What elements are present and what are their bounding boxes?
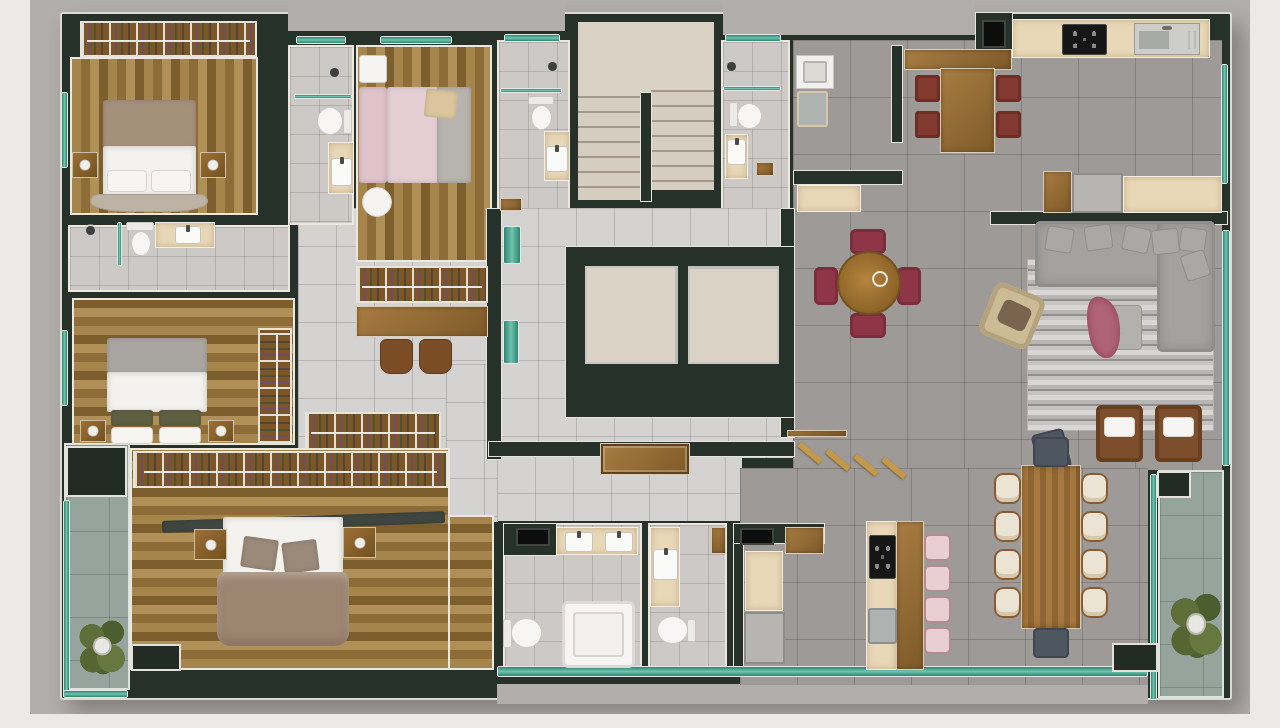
bed2-duvet <box>107 338 207 374</box>
bed2-pillow-green-a <box>111 410 153 426</box>
armchair-pillow-a <box>1104 417 1135 437</box>
dining-chair-cream-r3 <box>1081 549 1108 580</box>
ac-unit-balcony-left <box>66 446 127 497</box>
stove-island <box>869 535 896 579</box>
bed2-pillow-white-b <box>159 427 201 444</box>
bed2-sheet <box>107 372 207 412</box>
floor-plan-canvas <box>0 0 1280 728</box>
bed3-pillows <box>359 87 387 183</box>
breakfast-counter <box>904 49 1012 70</box>
toilet-bath2-bowl <box>317 107 343 135</box>
closet-corridor <box>305 412 441 450</box>
door-apartment-1 <box>503 226 521 264</box>
toilet-bath3-bowl <box>531 105 552 130</box>
window-bath4 <box>725 34 781 42</box>
panel-master-bedroom <box>131 644 181 671</box>
elevator-shaft-2 <box>688 266 779 364</box>
toilet-ensuite-bowl <box>131 231 151 256</box>
sofa-pillow-c <box>1121 224 1153 254</box>
island-stool-pink-2 <box>924 565 951 592</box>
panel-terrace <box>1112 643 1158 672</box>
nightstand-1a <box>72 152 98 178</box>
threshold-entry <box>787 430 847 437</box>
floor-bath2 <box>288 45 354 225</box>
appliance-utility <box>744 612 785 664</box>
closet-master <box>133 451 448 488</box>
exterior-notch-top-mid <box>288 0 565 31</box>
nightstand-3 <box>359 55 387 83</box>
island-wood-side <box>896 521 924 670</box>
dining-chair-cream-l2 <box>994 511 1021 542</box>
bed2-pillow-white-a <box>111 427 153 444</box>
console-hallway <box>797 185 861 212</box>
panel-utility <box>740 528 774 545</box>
laundry-sink <box>797 91 828 127</box>
shelf-bath5 <box>711 527 726 554</box>
table-round <box>837 251 901 315</box>
shower-shelf-bath4 <box>723 86 781 91</box>
bench-bath3 <box>500 198 522 211</box>
stair-landing <box>578 22 714 98</box>
island-stool-pink-4 <box>924 627 951 654</box>
island-stool-pink-3 <box>924 596 951 623</box>
bed1-pillow-b <box>151 170 191 192</box>
bed2-pillow-green-b <box>159 410 201 426</box>
window-kitchen-east <box>1221 64 1228 184</box>
closet-bedroom-top2 <box>356 266 488 303</box>
toilet-master-bowl <box>511 618 542 648</box>
stair-divider-wall <box>640 92 652 202</box>
stair-flight-right <box>651 90 714 190</box>
desk-chair-a <box>380 339 413 374</box>
breakfast-stool-b <box>915 111 940 138</box>
panel-balcony-right <box>1157 471 1191 498</box>
closet-bedroom-topleft <box>80 21 257 57</box>
toilet-bath2-tank <box>343 109 352 134</box>
floor-plan <box>0 0 1280 728</box>
stool-bath4 <box>756 162 774 176</box>
sofa-pillow-d <box>1151 228 1180 256</box>
window-bedroom-midleft <box>61 330 68 406</box>
dining-chair-cream-l1 <box>994 473 1021 504</box>
dining-table-long <box>1021 465 1081 629</box>
island-stool-pink-1 <box>924 534 951 561</box>
window-bedroom-top2 <box>380 36 452 44</box>
sofa-pillow-a <box>1044 225 1075 254</box>
sink-bath4 <box>727 139 746 165</box>
toilet-bath4-bowl <box>737 103 762 129</box>
glass-balcony-left <box>63 500 70 696</box>
counter-utility <box>745 551 783 611</box>
shower-head-bath2 <box>330 68 339 77</box>
window-bath2 <box>296 36 346 44</box>
sink-island <box>868 608 897 644</box>
window-bedroom-topleft <box>61 92 68 168</box>
wardrobe-midleft <box>258 328 292 445</box>
sink-bath3 <box>546 146 568 172</box>
shower-shelf-bath2 <box>294 94 352 99</box>
cabinet-console <box>1043 171 1072 213</box>
dining-chair-maroon-bottom <box>850 313 886 338</box>
shower-head-ensuite <box>86 226 95 235</box>
sink-master-a <box>565 532 593 552</box>
exterior-notch-top-right <box>723 0 975 35</box>
bed3-pillow-beige <box>424 88 459 119</box>
plant-balcony-left <box>74 612 130 680</box>
fridge <box>1072 173 1123 213</box>
wall-corridor-west <box>486 208 502 460</box>
desk-bedroom-top2 <box>356 306 488 337</box>
sink-ensuite <box>175 226 201 244</box>
dining-chair-maroon-left <box>814 267 838 305</box>
breakfast-stool-a <box>915 75 940 102</box>
bathtub-master <box>562 601 635 668</box>
dining-chair-cream-r4 <box>1081 587 1108 618</box>
bed3-stool <box>362 187 392 217</box>
shower-head-bath4 <box>727 62 736 71</box>
wall-laundry-east <box>891 45 903 143</box>
bed-master-duvet <box>217 572 349 646</box>
dining-chair-end-south <box>1033 628 1069 658</box>
washing-machine <box>796 55 834 89</box>
nightstand-master-b <box>343 527 376 558</box>
sink-bath2 <box>331 158 352 186</box>
elevator-shaft-1 <box>585 266 678 364</box>
window-bath3 <box>504 34 560 42</box>
toilet-bath5-bowl <box>657 616 688 644</box>
stair-flight-left <box>578 96 641 200</box>
shower-head-bath3 <box>548 62 557 71</box>
glass-balcony-left-south <box>63 690 128 698</box>
stove-kitchen <box>1062 24 1107 55</box>
sideboard-hallway <box>600 443 690 475</box>
dining-chair-end-north <box>1033 437 1069 467</box>
mat-bottom <box>0 714 1280 728</box>
exterior-south-strip <box>497 684 1148 704</box>
bed-master-pillow-a <box>240 536 279 572</box>
desk-chair-b <box>419 339 452 374</box>
breakfast-stool-c <box>996 75 1021 102</box>
armchair-pillow-b <box>1163 417 1194 437</box>
toilet-bath3-tank <box>528 96 554 105</box>
sink-bath5 <box>653 549 678 580</box>
dining-chair-cream-l4 <box>994 587 1021 618</box>
bed1-pillow-a <box>107 170 147 192</box>
breakfast-stool-d <box>996 111 1021 138</box>
dining-chair-cream-r2 <box>1081 511 1108 542</box>
shower-glass-ensuite <box>117 222 122 266</box>
mat-left <box>0 0 30 728</box>
wall-utility-west <box>733 523 744 675</box>
breakfast-table <box>940 68 995 153</box>
bed-master-pillow-b <box>281 539 320 574</box>
bed1-duvet <box>103 100 196 148</box>
nightstand-2a <box>80 420 106 442</box>
door-apartment-2 <box>503 320 519 364</box>
toilet-bath5-tank <box>687 619 696 642</box>
cabinet-utility <box>785 527 824 554</box>
nightstand-2b <box>208 420 234 442</box>
dining-chair-cream-r1 <box>1081 473 1108 504</box>
sink-kitchen-double <box>1134 23 1200 55</box>
nightstand-master-a <box>194 529 227 560</box>
sink-master-b <box>605 532 633 552</box>
bed1-headboard <box>90 194 208 212</box>
toilet-ensuite-tank <box>126 222 154 231</box>
nightstand-1b <box>200 152 226 178</box>
counter-console <box>1123 176 1222 213</box>
panel-kitchen-nook <box>982 20 1006 48</box>
sofa-pillow-b <box>1083 223 1113 252</box>
window-living-east <box>1222 230 1230 466</box>
dining-chair-cream-l3 <box>994 549 1021 580</box>
panel-master-bath <box>516 528 550 546</box>
plant-balcony-right <box>1166 583 1226 665</box>
wall-laundry-south <box>793 170 903 185</box>
floor-master-bedroom-ext <box>448 515 494 670</box>
mat-right <box>1250 0 1280 728</box>
shower-shelf-bath3 <box>500 88 562 93</box>
